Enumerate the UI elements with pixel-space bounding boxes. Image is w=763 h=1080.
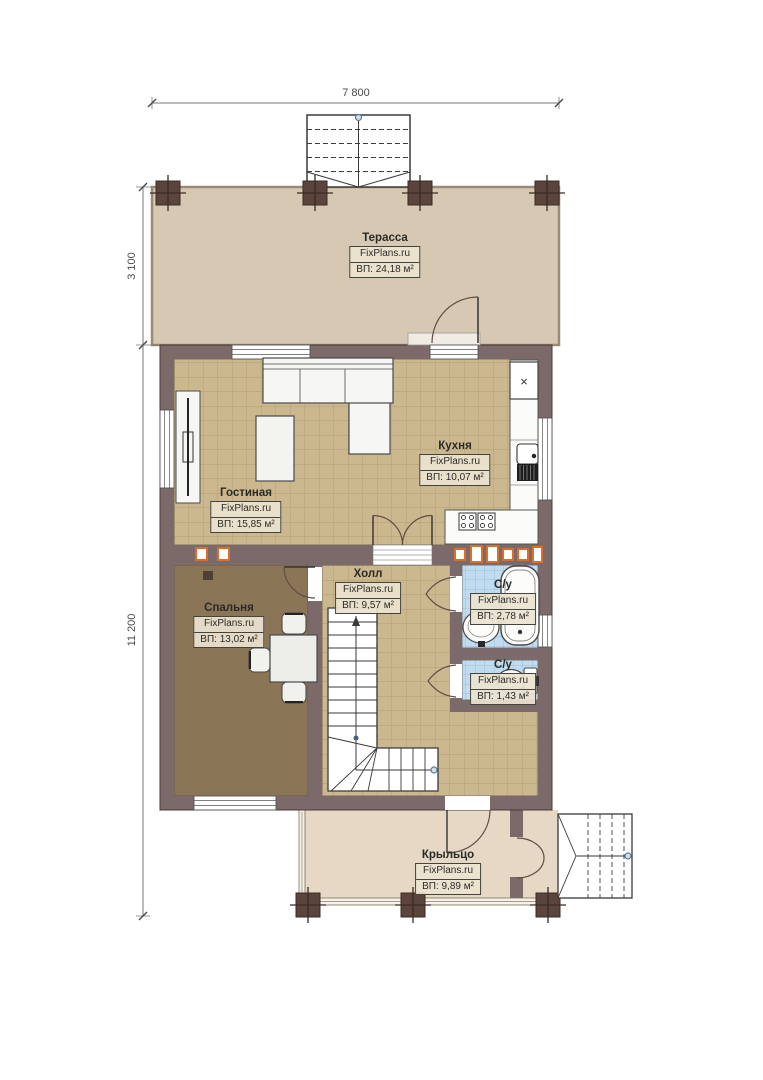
wall-right [538, 345, 552, 810]
drain-icon [518, 630, 522, 634]
chair [282, 613, 306, 634]
watermark: FixPlans.ru [471, 594, 535, 610]
table [270, 635, 317, 682]
watermark: FixPlans.ru [211, 502, 280, 518]
door-opening-porch [445, 796, 490, 810]
vent-marker-icon [471, 546, 482, 562]
porch-internal-wall [510, 877, 523, 898]
porch-internal-wall [510, 810, 523, 837]
watermark: FixPlans.ru [350, 247, 419, 263]
wall-top [160, 345, 552, 359]
room-label-terrace: Терасса FixPlans.ru ВП: 24,18 м² [349, 232, 420, 278]
door-opening-bath2 [450, 664, 462, 698]
double-door-threshold [373, 545, 432, 565]
vent-marker-icon [533, 547, 542, 562]
stair-direction-marker [625, 853, 631, 859]
vent-marker-icon [518, 549, 528, 560]
room-area: ВП: 9,57 м² [336, 599, 400, 614]
room-name: С/у [470, 659, 536, 671]
room-name: Терасса [349, 232, 420, 244]
room-name: Спальня [193, 602, 264, 614]
room-name: Гостиная [210, 487, 281, 499]
room-label-porch: Крыльцо FixPlans.ru ВП: 9,89 м² [415, 849, 481, 895]
room-name: Холл [335, 568, 401, 580]
watermark: FixPlans.ru [194, 617, 263, 633]
window [538, 615, 552, 647]
floor-plan-drawing: × [0, 0, 763, 1080]
room-area: ВП: 13,02 м² [194, 633, 263, 648]
chair [249, 648, 270, 672]
room-info-box: FixPlans.ru ВП: 13,02 м² [193, 616, 264, 648]
room-info-box: FixPlans.ru ВП: 10,07 м² [419, 454, 490, 486]
room-area: ВП: 15,85 м² [211, 518, 280, 533]
faucet-icon [532, 454, 536, 458]
vent-marker-icon [503, 549, 513, 560]
vent-marker-icon [196, 548, 207, 560]
room-label-bedroom: Спальня FixPlans.ru ВП: 13,02 м² [193, 602, 264, 648]
room-label-living: Гостиная FixPlans.ru ВП: 15,85 м² [210, 487, 281, 533]
room-label-hall: Холл FixPlans.ru ВП: 9,57 м² [335, 568, 401, 614]
sofa [263, 358, 393, 403]
coffee-table [256, 416, 294, 481]
room-name: С/у [470, 579, 536, 591]
dimension-house-depth-label: 11 200 [126, 614, 138, 647]
window [538, 418, 552, 500]
watermark: FixPlans.ru [471, 674, 535, 690]
room-name: Крыльцо [415, 849, 481, 861]
door-opening-bedroom [308, 567, 322, 601]
fridge-icon: × [520, 374, 528, 389]
vent-marker-icon [455, 549, 465, 560]
room-area: ВП: 2,78 м² [471, 610, 535, 625]
room-info-box: FixPlans.ru ВП: 15,85 м² [210, 501, 281, 533]
watermark: FixPlans.ru [336, 583, 400, 599]
room-label-kitchen: Кухня FixPlans.ru ВП: 10,07 м² [419, 440, 490, 486]
window [232, 345, 310, 359]
stair-direction-marker [431, 767, 437, 773]
window [194, 796, 276, 810]
room-label-bathroom-2: С/у FixPlans.ru ВП: 1,43 м² [470, 659, 536, 705]
chair [282, 682, 306, 703]
window [160, 410, 174, 488]
door-opening-bath1 [450, 576, 462, 612]
room-label-bathroom-1: С/у FixPlans.ru ВП: 2,78 м² [470, 579, 536, 625]
room-info-box: FixPlans.ru ВП: 9,89 м² [415, 863, 481, 895]
watermark: FixPlans.ru [420, 455, 489, 471]
vent-marker-icon [218, 548, 229, 560]
room-area: ВП: 1,43 м² [471, 690, 535, 705]
dimension-terrace-depth-label: 3 100 [126, 252, 138, 280]
terrace-entry-stairs [307, 115, 410, 188]
nightstand [203, 571, 213, 580]
room-name: Кухня [419, 440, 490, 452]
room-info-box: FixPlans.ru ВП: 9,57 м² [335, 582, 401, 614]
watermark: FixPlans.ru [416, 864, 480, 880]
stair-direction-marker [356, 115, 362, 121]
sofa-chaise [349, 398, 390, 454]
dimension-width-label: 7 800 [342, 87, 370, 99]
room-area: ВП: 10,07 м² [420, 471, 489, 486]
room-info-box: FixPlans.ru ВП: 1,43 м² [470, 673, 536, 705]
room-info-box: FixPlans.ru ВП: 24,18 м² [349, 246, 420, 278]
floor-plan-canvas: × [0, 0, 763, 1080]
room-area: ВП: 24,18 м² [350, 263, 419, 278]
tap-icon [478, 641, 485, 647]
room-info-box: FixPlans.ru ВП: 2,78 м² [470, 593, 536, 625]
room-area: ВП: 9,89 м² [416, 880, 480, 895]
porch-exterior-stairs [558, 814, 632, 898]
vent-marker-icon [487, 546, 498, 562]
